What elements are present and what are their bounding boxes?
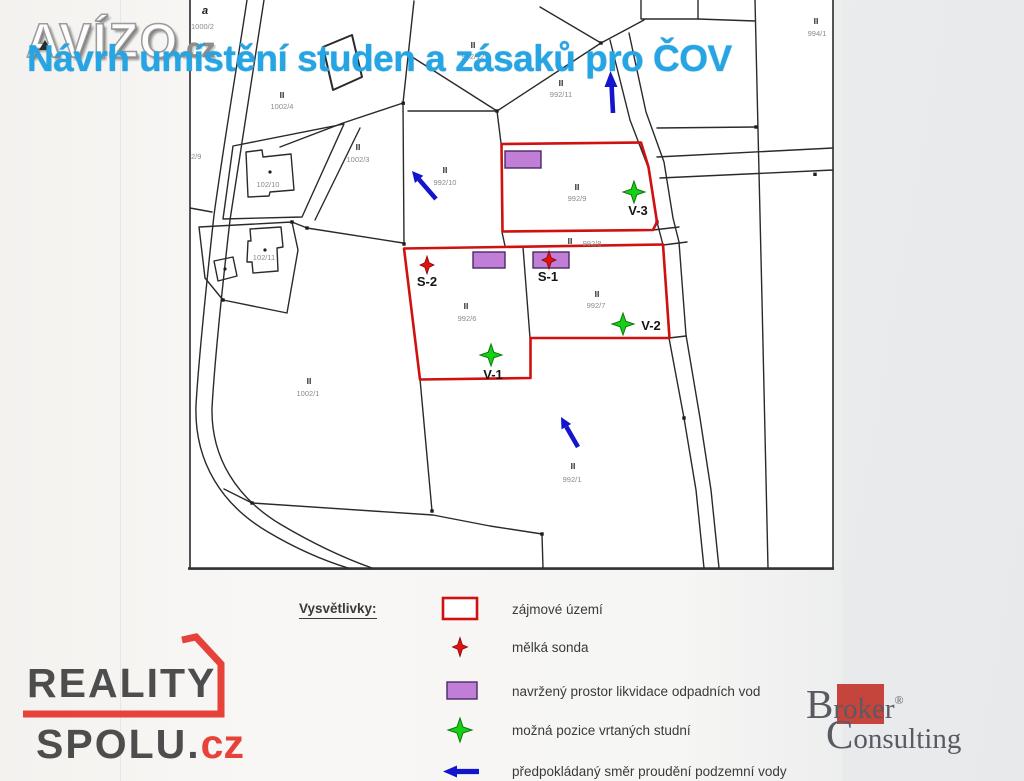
parcel-number: 992/11 xyxy=(550,90,572,99)
legend-purple-rect xyxy=(447,682,477,699)
legend-well-icon xyxy=(448,718,472,742)
label-s2: S-2 xyxy=(417,274,437,289)
parcel-number: 2/9 xyxy=(191,152,201,161)
parcel-marker: II xyxy=(814,16,819,26)
parcel-marker: II xyxy=(280,90,285,100)
legend-symbols xyxy=(443,598,479,778)
legend-flow-arrow-icon xyxy=(443,766,479,778)
parcel-marker: II xyxy=(575,182,580,192)
parcel-marker: II xyxy=(443,165,448,175)
label-v2: V-2 xyxy=(641,318,661,333)
parcel-number: 992/8 xyxy=(583,239,602,248)
legend-item-label: možná pozice vrtaných studní xyxy=(512,723,691,738)
legend-item-label: zájmové území xyxy=(512,602,603,617)
parcel-number: 1002/1 xyxy=(297,389,320,398)
legend-probe-icon xyxy=(453,638,468,657)
parcel-number: 992/7 xyxy=(587,301,606,310)
parcel-marker: II xyxy=(307,376,312,386)
parcel-number: 992/6 xyxy=(458,314,477,323)
legend-heading: Vysvětlivky: xyxy=(299,601,377,619)
parcel-number: 1002/3 xyxy=(347,155,370,164)
parcel-number: 992/1 xyxy=(563,475,582,484)
parcel-marker: II xyxy=(464,301,469,311)
parcel-number: 1002/4 xyxy=(271,102,294,111)
consulting-rest: onsulting xyxy=(853,723,961,755)
legend-item-label: navržený prostor likvidace odpadních vod xyxy=(512,684,760,699)
label-s1: S-1 xyxy=(538,269,558,284)
parcel-marker: II xyxy=(568,236,573,246)
broker-registered-mark: ® xyxy=(895,693,904,707)
parcel-marker: II xyxy=(571,461,576,471)
legend-item-label: mělká sonda xyxy=(512,640,589,655)
parcel-number: 994/1 xyxy=(808,29,827,38)
parcel-number: 992/10 xyxy=(434,178,457,187)
page-title: Návrh umístění studen a zásaků pro ČOV xyxy=(27,38,807,80)
reality-spolu-logo-line2: SPOLU.cz xyxy=(36,721,244,768)
label-v1: V-1 xyxy=(483,367,503,382)
consulting-c: C xyxy=(826,711,853,757)
reality-spolu-tld: cz xyxy=(201,721,244,767)
parcel-number: 102/11 xyxy=(253,253,275,262)
reality-spolu-logo-line1: REALITY xyxy=(27,660,216,707)
legend-item-label: předpokládaný směr proudění podzemní vod… xyxy=(512,764,787,779)
map-sheet xyxy=(190,0,833,569)
reality-spolu-word: SPOLU. xyxy=(36,721,201,767)
parcel-marker: II xyxy=(595,289,600,299)
legend-area-rect xyxy=(443,598,477,619)
label-v3: V-3 xyxy=(628,203,648,218)
parcel-marker: II xyxy=(356,142,361,152)
page: S-2 S-1 V-1 V-2 V-3 II II II II II II II… xyxy=(0,0,1024,781)
parcel-number: 102/10 xyxy=(257,180,280,189)
parcel-number: 992/9 xyxy=(568,194,587,203)
broker-consulting-logo-line2: Consulting xyxy=(826,720,961,756)
